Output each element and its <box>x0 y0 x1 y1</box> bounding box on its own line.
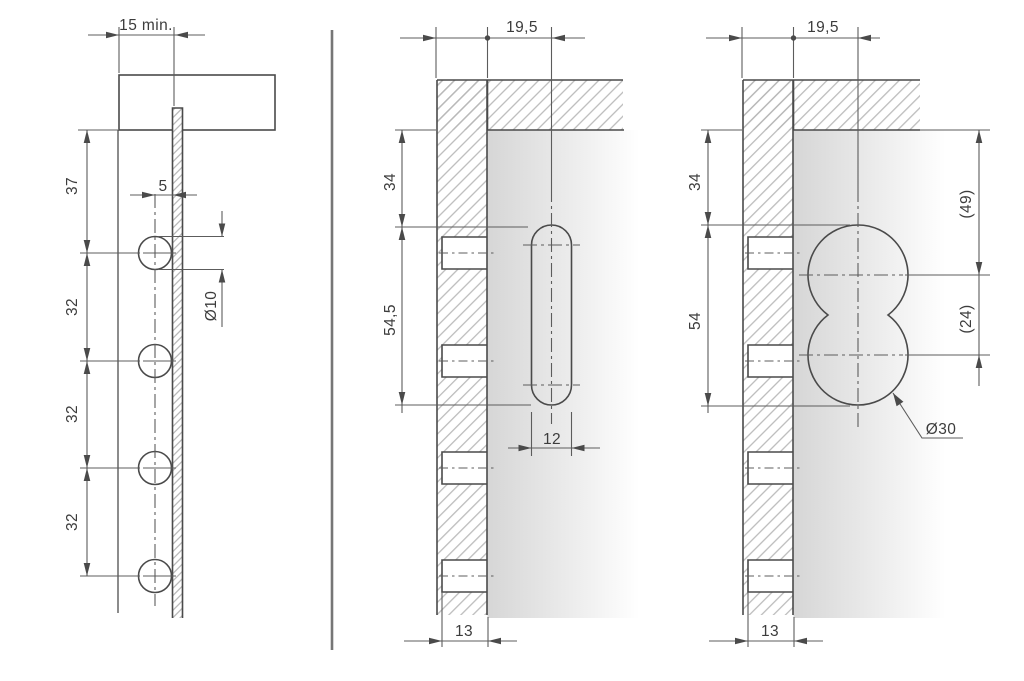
dim-ref-center-distance: (24) <box>958 304 975 333</box>
dimension-origin-dot-right <box>791 35 796 40</box>
dim-axis-to-front: 5 <box>158 178 167 195</box>
dim-front-to-axis-right: 19,5 <box>807 19 839 36</box>
mounting-plate <box>173 108 183 618</box>
dim-edge-distance-min: 15 min. <box>119 17 173 34</box>
dim-slot-width: 12 <box>543 431 561 448</box>
top-panel-section <box>119 75 275 130</box>
view-right-circle-cutout: 19,5 34 54 (49) (24) Ø30 13 <box>687 19 990 647</box>
dim-top-to-cutout-right: 34 <box>687 173 704 191</box>
dim-hole-diameter: Ø10 <box>203 291 220 322</box>
dim-drill-depth-right: 13 <box>761 623 779 640</box>
view-left-side-section: 15 min. 5 37 32 32 32 Ø10 <box>64 17 275 618</box>
dim-drill-depth-middle: 13 <box>455 623 473 640</box>
dim-cutout-height: 54 <box>687 312 704 330</box>
mounting-plate-hatch <box>173 108 183 618</box>
door-panel-shade <box>488 130 640 618</box>
top-panel-hatch <box>437 80 623 130</box>
dim-cutout-diameter: Ø30 <box>926 421 957 438</box>
dim-top-to-slot: 34 <box>382 173 399 191</box>
top-panel-hatch-right <box>743 80 920 130</box>
dim-hole-pitch-1: 32 <box>64 298 81 316</box>
dim-hole-pitch-3: 32 <box>64 513 81 531</box>
dim-ref-top-to-center: (49) <box>958 189 975 218</box>
dim-front-to-axis-middle: 19,5 <box>506 19 538 36</box>
technical-drawing-canvas: 15 min. 5 37 32 32 32 Ø10 <box>0 0 1024 681</box>
door-panel-shade-right <box>794 130 946 618</box>
dimension-lines-left <box>87 35 205 576</box>
drawing-svg: 15 min. 5 37 32 32 32 Ø10 <box>0 0 1024 681</box>
dimension-origin-dot-middle <box>485 35 490 40</box>
dim-hole-pitch-2: 32 <box>64 405 81 423</box>
dim-slot-length: 54,5 <box>382 304 399 336</box>
view-middle-slot-cutout: 19,5 34 54,5 12 13 <box>382 19 640 647</box>
dim-top-to-first-hole: 37 <box>64 177 81 195</box>
